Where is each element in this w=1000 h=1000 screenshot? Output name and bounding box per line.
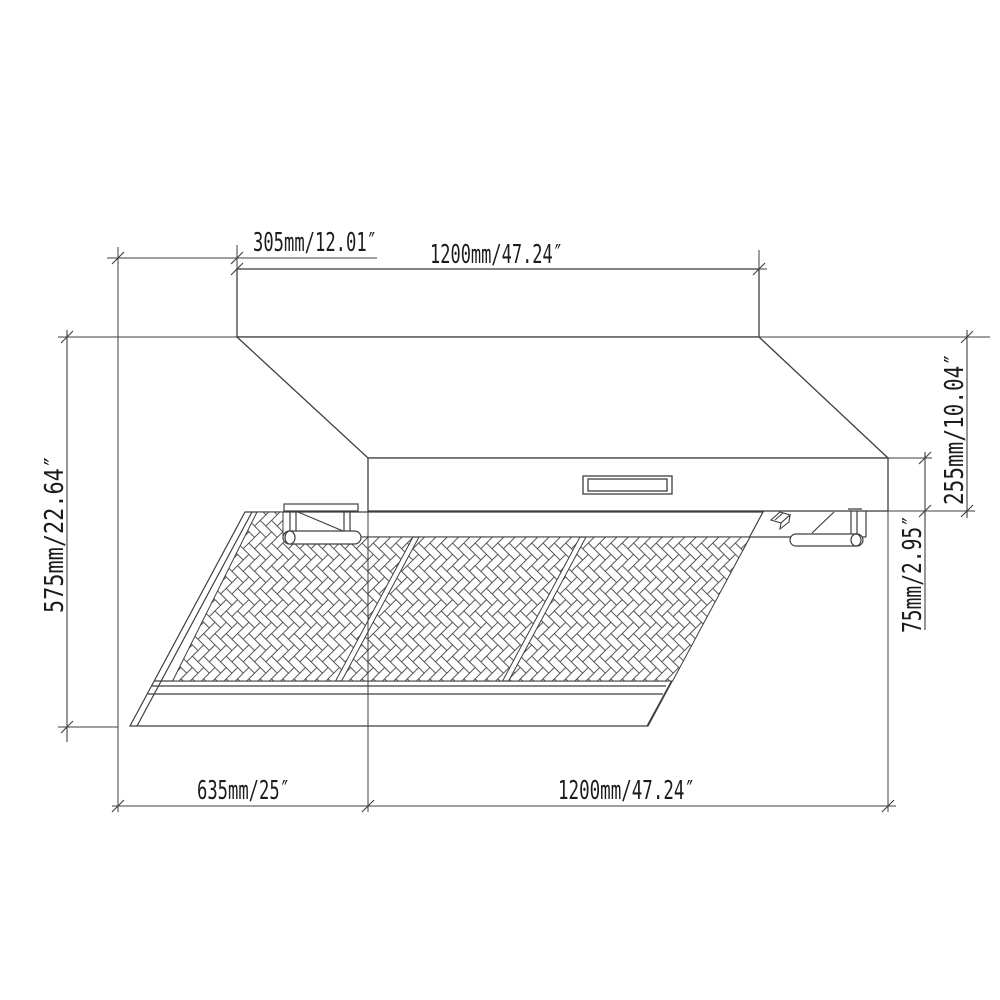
dim-label-bottom-width: 1200mm/47.24″ <box>558 776 695 806</box>
chimney-duct-cover <box>237 269 759 337</box>
dim-label-right-upper: 255mm/10.04″ <box>940 353 970 505</box>
dim-label-top-offset: 305mm/12.01″ <box>253 228 377 258</box>
left-roller-cap <box>285 531 295 544</box>
baffle-filter-panels <box>173 512 750 681</box>
technical-drawing-canvas: 305mm/12.01″ 1200mm/47.24″ 575mm/22.64″ … <box>0 0 1000 1000</box>
left-bracket-bar <box>284 504 358 511</box>
dim-label-left-height: 575mm/22.64″ <box>40 455 70 613</box>
dim-label-right-lower: 75mm/2.95″ <box>898 515 928 633</box>
dim-label-bottom-depth: 635mm/25″ <box>197 776 290 806</box>
right-roller-cap <box>851 534 861 546</box>
control-panel-inner <box>588 479 667 491</box>
range-hood-dimension-diagram: 305mm/12.01″ 1200mm/47.24″ 575mm/22.64″ … <box>0 0 1000 1000</box>
dim-label-top-width: 1200mm/47.24″ <box>430 240 563 270</box>
